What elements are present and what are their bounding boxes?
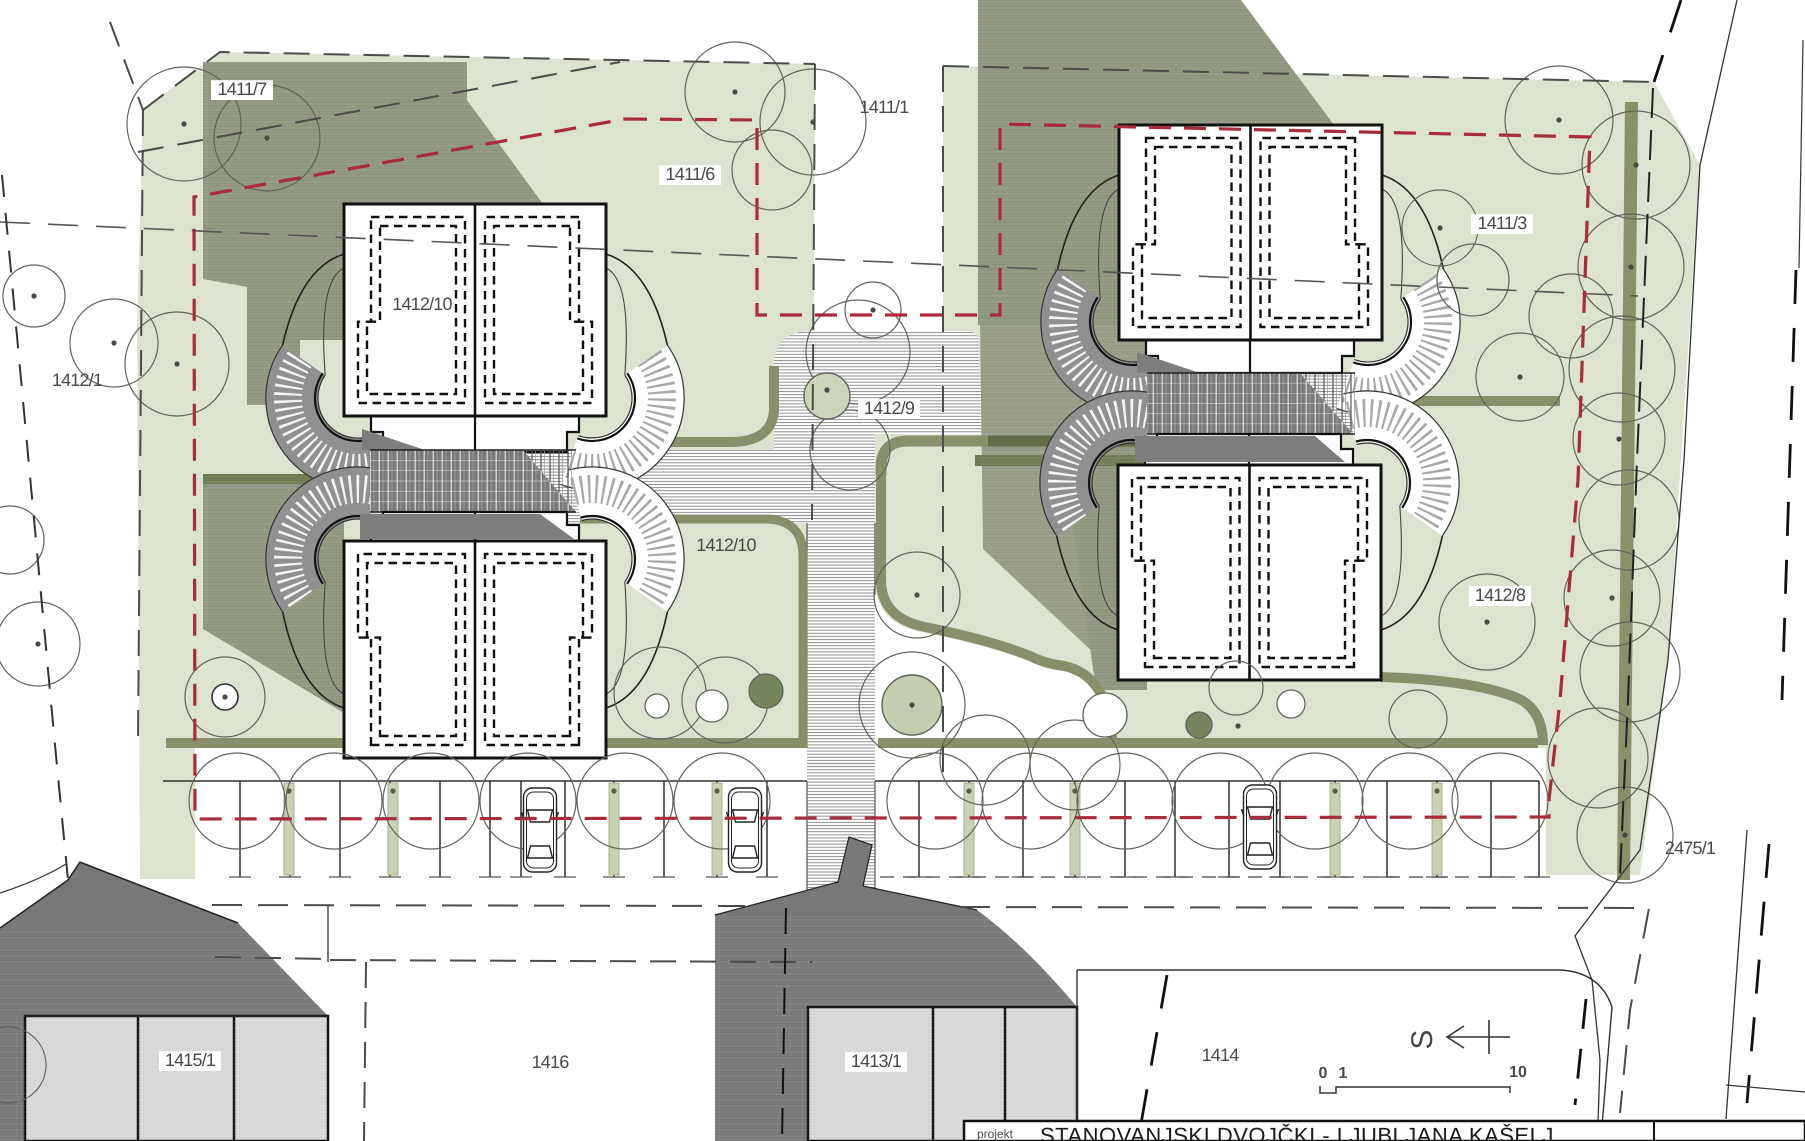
svg-text:STANOVANJSKI DVOJČKI - LJUBLJA: STANOVANJSKI DVOJČKI - LJUBLJANA KAŠELJ [1040,1123,1554,1141]
svg-text:1413/1: 1413/1 [851,1051,902,1071]
svg-text:1416: 1416 [532,1052,570,1072]
svg-text:0: 0 [1319,1065,1328,1082]
svg-text:1412/1: 1412/1 [52,370,103,390]
svg-text:1411/7: 1411/7 [218,79,268,99]
svg-text:1411/3: 1411/3 [1478,213,1528,233]
svg-text:10: 10 [1509,1064,1527,1081]
svg-text:1411/1: 1411/1 [860,97,910,117]
svg-text:projekt: projekt [977,1127,1014,1141]
svg-text:1415/1: 1415/1 [165,1050,216,1070]
svg-text:1412/10: 1412/10 [696,535,756,555]
svg-text:1414: 1414 [1202,1045,1240,1065]
svg-text:1412/10: 1412/10 [392,294,452,314]
svg-text:S: S [1406,1030,1439,1049]
svg-text:1411/6: 1411/6 [666,164,716,184]
svg-text:1: 1 [1339,1065,1348,1082]
svg-text:1412/8: 1412/8 [1475,585,1526,605]
svg-text:1412/9: 1412/9 [864,398,915,418]
svg-text:2475/1: 2475/1 [1665,838,1716,858]
